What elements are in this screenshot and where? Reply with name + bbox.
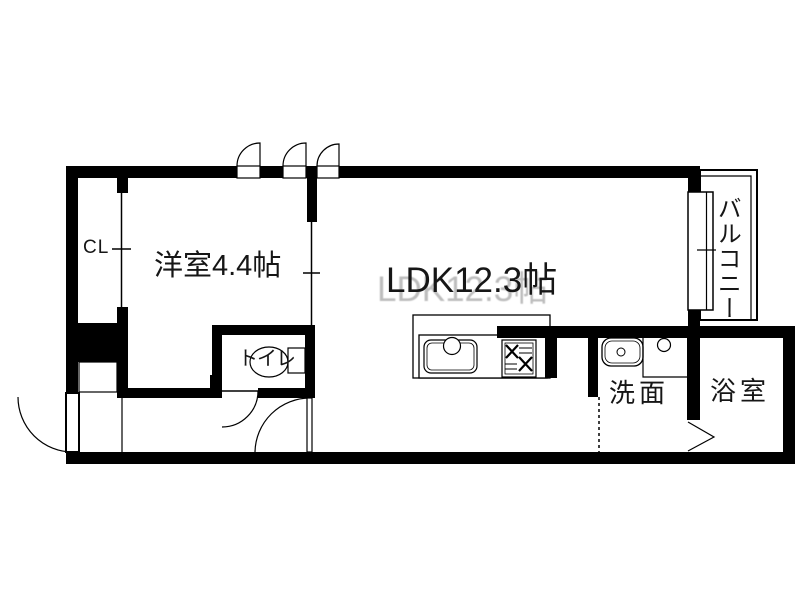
sliding-door-line: [303, 222, 320, 325]
floorplan-canvas: LDK12.3帖: [0, 0, 800, 600]
sink-icon: [424, 338, 477, 374]
closet-partition-line: [112, 193, 131, 307]
balcony-window: [688, 192, 716, 310]
toilet-door: [222, 391, 258, 427]
entrance-step: [79, 362, 122, 452]
room-label-ldk: LDK12.3帖: [386, 263, 557, 300]
entrance-door: [18, 393, 79, 452]
room-label-balcony: バルコニー: [714, 196, 739, 328]
ldk-door: [255, 398, 312, 452]
top-windows: [237, 143, 339, 178]
room-label-toilet: トイレ: [238, 349, 295, 370]
room-label-bathroom: 浴室: [710, 378, 770, 405]
stove-icon: [502, 340, 536, 377]
floorplan-drawing: [0, 0, 800, 600]
bath-folding-door: [688, 422, 714, 451]
room-label-western-room: 洋室4.4帖: [154, 251, 281, 281]
room-label-washroom: 洗面: [609, 380, 669, 407]
room-label-closet: CL: [83, 238, 109, 258]
